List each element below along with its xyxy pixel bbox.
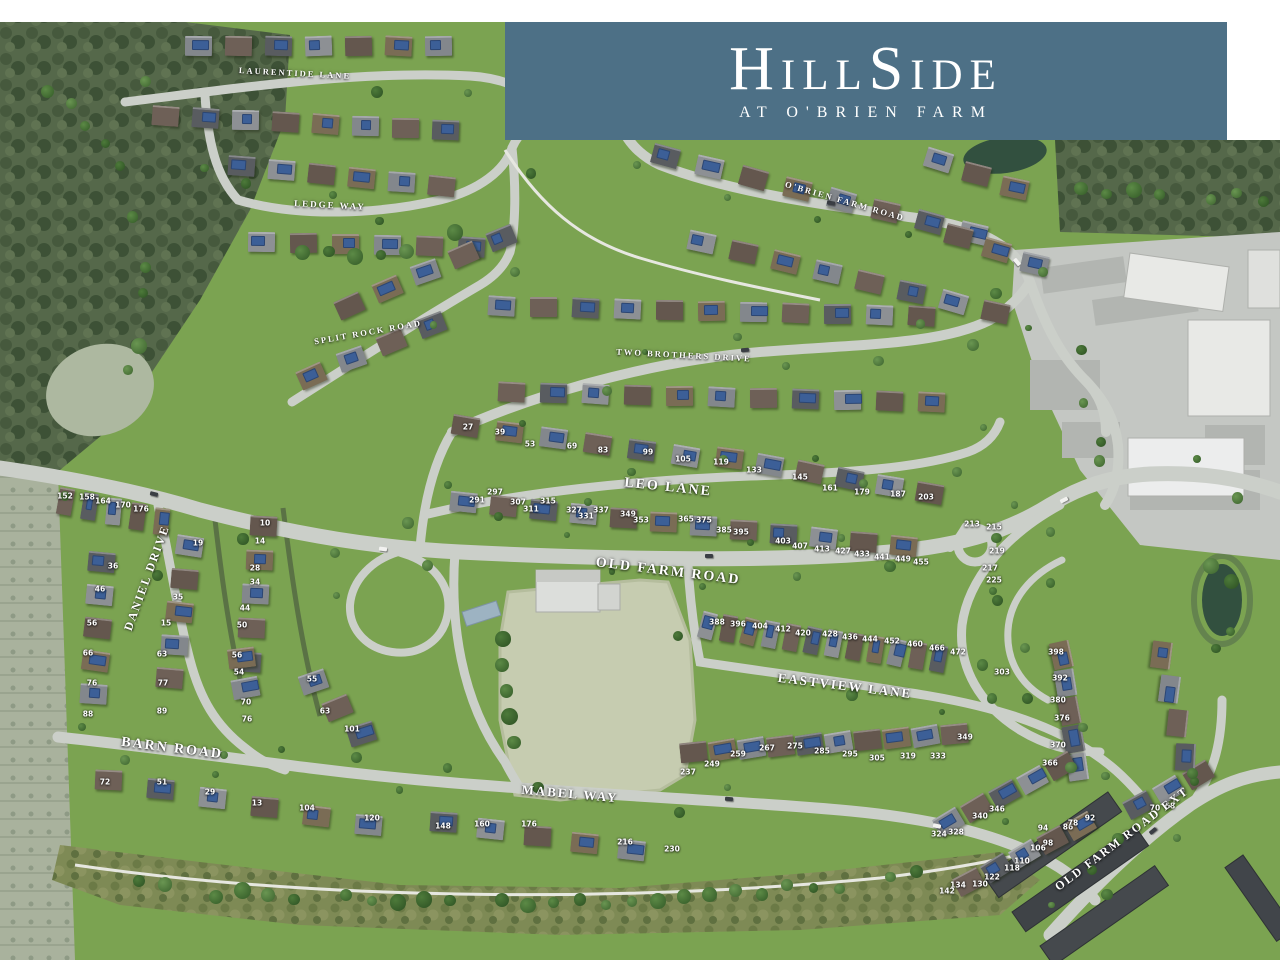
terrain-graphics	[0, 0, 1280, 960]
development-subtitle: AT O'BRIEN FARM	[739, 104, 993, 122]
development-title: HillSide	[729, 40, 1003, 98]
page-margin-corner	[1227, 0, 1280, 140]
development-banner: HillSide AT O'BRIEN FARM	[505, 22, 1227, 140]
site-plan-map: 2739536983991051191331451611791872032912…	[0, 0, 1280, 960]
pond-east	[1202, 564, 1242, 636]
open-field	[500, 580, 695, 800]
page-margin-top	[0, 0, 1280, 22]
woods-topright	[1055, 140, 1280, 238]
